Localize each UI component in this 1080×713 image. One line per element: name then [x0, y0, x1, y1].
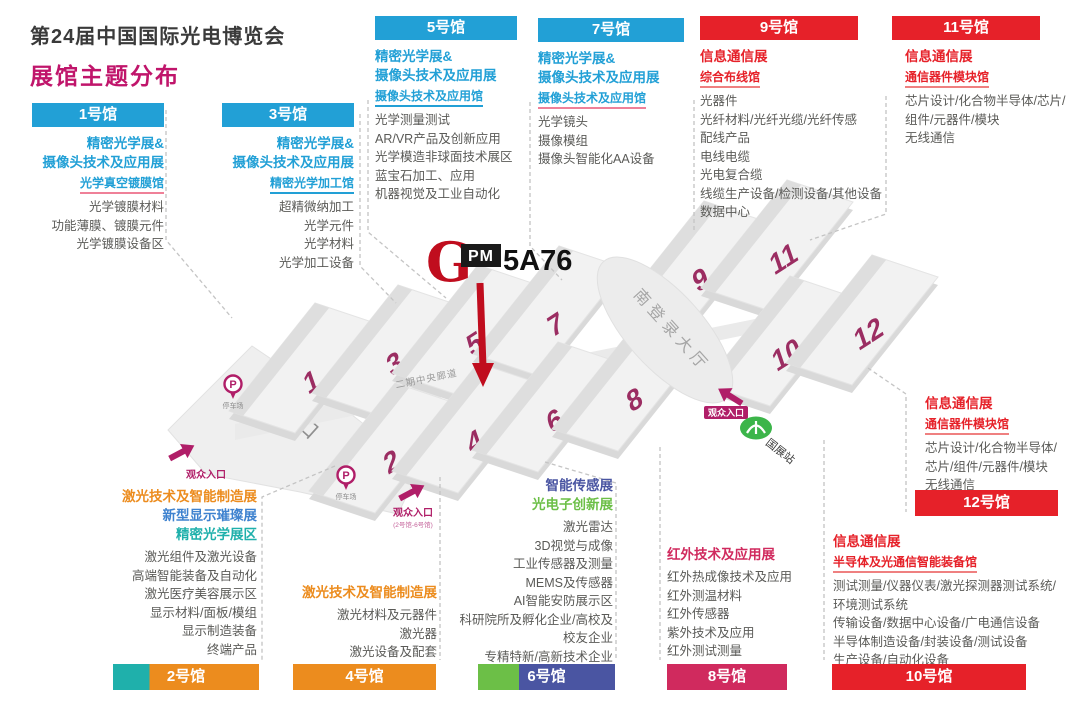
hall-2-item: 终端产品: [100, 641, 257, 660]
hall-5-title-line: 摄像头技术及应用展: [375, 66, 527, 85]
hall-9-item: 数据中心: [700, 203, 862, 222]
hall-9-panel: 9号馆 信息通信展 综合布线馆 光器件光纤材料/光纤光缆/光纤传感配线产品电线电…: [700, 16, 862, 222]
hall-1-subtitle: 光学真空镀膜馆: [80, 175, 164, 194]
hall-5-title-line: 精密光学展&: [375, 47, 527, 66]
hall-3-item: 光学材料: [206, 235, 354, 254]
hall-6-panel: 智能传感展光电子创新展 激光雷达3D视觉与成像工业传感器及测量MEMS及传感器A…: [448, 476, 613, 666]
hall-8-item: 红外测试测量: [667, 642, 825, 661]
hall-3-header: 3号馆: [222, 103, 354, 127]
hall-8-item: 红外传感器: [667, 605, 825, 624]
hall-6-item: 工业传感器及测量: [448, 555, 613, 574]
parking-icon: P: [229, 379, 236, 391]
hall-6-item: 激光雷达: [448, 518, 613, 537]
hall-8-item: 红外热成像技术及应用: [667, 568, 825, 587]
hall-11-item: 无线通信: [905, 129, 1068, 148]
hall-7-item: 摄像模组: [538, 132, 688, 151]
hall-4-panel: 激光技术及智能制造展 激光材料及元器件激光器激光设备及配套: [300, 583, 437, 662]
hall-12-footer: 12号馆: [915, 490, 1058, 516]
hall-10-footer: 10号馆: [832, 664, 1026, 690]
hall-9-item: 光电复合缆: [700, 166, 862, 185]
hall-9-header: 9号馆: [700, 16, 858, 40]
hall-12-panel: 信息通信展 通信器件模块馆 芯片设计/化合物半导体/芯片/组件/元器件/模块无线…: [925, 394, 1063, 495]
parking-label-2: 停车场: [336, 492, 357, 501]
hall-10-item: 半导体制造设备/封装设备/测试设备: [833, 633, 1064, 652]
hall-10-subtitle: 半导体及光通信智能装备馆: [833, 554, 977, 573]
hall-12-title: 信息通信展: [925, 394, 1063, 413]
hall-9-item: 光器件: [700, 92, 862, 111]
hall-9-subtitle: 综合布线馆: [700, 69, 760, 88]
parking-label-1: 停车场: [223, 401, 244, 410]
hall-12-item: 芯片设计/化合物半导体/芯片/组件/元器件/模块: [925, 439, 1063, 476]
hall-10-panel: 信息通信展 半导体及光通信智能装备馆 测试测量/仪器仪表/激光探测器测试系统/环…: [833, 532, 1064, 670]
hall-7-item: 摄像头智能化AA设备: [538, 150, 688, 169]
hall-9-item: 配线产品: [700, 129, 862, 148]
page-subtitle: 展馆主题分布: [30, 57, 285, 91]
hall-7-header: 7号馆: [538, 18, 684, 42]
hall-3-title-line: 摄像头技术及应用展: [206, 153, 354, 172]
hall-9-title: 信息通信展: [700, 47, 862, 66]
hall-2-item: 激光医疗美容展示区: [100, 585, 257, 604]
hall-1-item: 功能薄膜、镀膜元件: [8, 217, 164, 236]
hall-12-subtitle: 通信器件模块馆: [925, 416, 1009, 435]
hall-2-title-line: 新型显示璀璨展: [100, 506, 257, 525]
hall-1-title-line: 精密光学展&: [8, 134, 164, 153]
hall-11-item: 芯片设计/化合物半导体/芯片/组件/元器件/模块: [905, 92, 1068, 129]
hall-6-item: 3D视觉与成像: [448, 537, 613, 556]
visitor-entrance-bottom-label: 观众入口: [393, 506, 433, 519]
hall-6-item: MEMS及传感器: [448, 574, 613, 593]
hall-5-panel: 5号馆 精密光学展&摄像头技术及应用展 摄像头技术及应用馆 光学测量测试AR/V…: [375, 16, 527, 204]
hall-9-item: 电线电缆: [700, 148, 862, 167]
hall-4-footer: 4号馆: [293, 664, 436, 690]
hall-6-title-line: 智能传感展: [448, 476, 613, 495]
hall-11-title: 信息通信展: [905, 47, 1068, 66]
hall-4-item: 激光材料及元器件: [300, 606, 437, 625]
hall-8-item: 红外测温材料: [667, 587, 825, 606]
hall-2-title-line: 精密光学展区: [100, 525, 257, 544]
hall-10-title: 信息通信展: [833, 532, 1064, 551]
hall-2-item: 高端智能装备及自动化: [100, 567, 257, 586]
hall-2-item: 激光组件及激光设备: [100, 548, 257, 567]
gpm-logo-pm: PM: [468, 248, 494, 265]
booth-arrow: [480, 283, 483, 367]
hall-3-panel: 3号馆 精密光学展&摄像头技术及应用展 精密光学加工馆 超精微纳加工光学元件光学…: [206, 103, 354, 272]
hall-3-item: 光学元件: [206, 217, 354, 236]
hall-8-footer: 8号馆: [667, 664, 787, 690]
hall-7-item: 光学镜头: [538, 113, 688, 132]
hall-5-item: 机器视觉及工业自动化: [375, 185, 527, 204]
hall-1-title-line: 摄像头技术及应用展: [8, 153, 164, 172]
hall-9-item: 光纤材料/光纤光缆/光纤传感: [700, 111, 862, 130]
hall-2-title-line: 激光技术及智能制造展: [100, 487, 257, 506]
metro-station-label: 国展站: [763, 435, 798, 466]
hall-5-item: 光学模造非球面技术展区: [375, 148, 527, 167]
hall-3-item: 光学加工设备: [206, 254, 354, 273]
hall-3-title-line: 精密光学展&: [206, 134, 354, 153]
hall-7-subtitle: 摄像头技术及应用馆: [538, 90, 646, 109]
hall-7-panel: 7号馆 精密光学展&摄像头技术及应用展 摄像头技术及应用馆 光学镜头摄像模组摄像…: [538, 18, 688, 169]
hall-7-title-line: 摄像头技术及应用展: [538, 68, 688, 87]
hall-4-item: 激光设备及配套: [300, 643, 437, 662]
hall-6-footer: 6号馆: [478, 664, 615, 690]
page-header: 第24届中国国际光电博览会 展馆主题分布: [30, 20, 285, 91]
hall-3-item: 超精微纳加工: [206, 198, 354, 217]
hall-4-title: 激光技术及智能制造展: [300, 583, 437, 602]
hall-1-header: 1号馆: [32, 103, 164, 127]
visitor-entrance-bottom-sub: (2号馆-6号馆): [393, 520, 433, 529]
hall-8-panel: 红外技术及应用展 红外热成像技术及应用红外测温材料红外传感器紫外技术及应用红外测…: [667, 545, 825, 661]
hall-10-item: 测试测量/仪器仪表/激光探测器测试系统/环境测试系统: [833, 577, 1064, 614]
hall-6-title-line: 光电子创新展: [448, 495, 613, 514]
hall-5-item: AR/VR产品及创新应用: [375, 130, 527, 149]
hall-5-header: 5号馆: [375, 16, 517, 40]
visitor-entrance-right-label: 观众入口: [708, 407, 744, 418]
hall-10-item: 传输设备/数据中心设备/广电通信设备: [833, 614, 1064, 633]
hall-4-item: 激光器: [300, 625, 437, 644]
hall-5-subtitle: 摄像头技术及应用馆: [375, 88, 483, 107]
visitor-entrance-left-label: 观众入口: [186, 468, 226, 481]
hall-6-item: AI智能安防展示区: [448, 592, 613, 611]
hall-6-item: 校友企业: [448, 629, 613, 648]
hall-3-subtitle: 精密光学加工馆: [270, 175, 354, 194]
hall-11-header: 11号馆: [892, 16, 1040, 40]
hall-1-item: 光学镀膜材料: [8, 198, 164, 217]
page-title: 第24届中国国际光电博览会: [30, 20, 285, 49]
hall-2-panel: 激光技术及智能制造展新型显示璀璨展精密光学展区 激光组件及激光设备高端智能装备及…: [100, 487, 257, 659]
hall-2-footer: 2号馆: [113, 664, 259, 690]
hall-2-item: 显示材料/面板/模组: [100, 604, 257, 623]
gpm-logo-code: 5A76: [503, 245, 572, 277]
hall-5-item: 光学测量测试: [375, 111, 527, 130]
hall-1-item: 光学镀膜设备区: [8, 235, 164, 254]
metro-station: 国展站: [740, 417, 798, 467]
hall-9-item: 线缆生产设备/检测设备/其他设备: [700, 185, 862, 204]
hall-5-item: 蓝宝石加工、应用: [375, 167, 527, 186]
hall-6-item: 科研院所及孵化企业/高校及: [448, 611, 613, 630]
hall-7-title-line: 精密光学展&: [538, 49, 688, 68]
hall-8-title: 红外技术及应用展: [667, 545, 825, 564]
hall-11-panel: 11号馆 信息通信展 通信器件模块馆 芯片设计/化合物半导体/芯片/组件/元器件…: [892, 16, 1068, 148]
parking-icon: P: [342, 470, 349, 482]
hall-8-item: 紫外技术及应用: [667, 624, 825, 643]
hall-11-subtitle: 通信器件模块馆: [905, 69, 989, 88]
hall-1-panel: 1号馆 精密光学展&摄像头技术及应用展 光学真空镀膜馆 光学镀膜材料功能薄膜、镀…: [8, 103, 164, 254]
hall-2-item: 显示制造装备: [100, 622, 257, 641]
